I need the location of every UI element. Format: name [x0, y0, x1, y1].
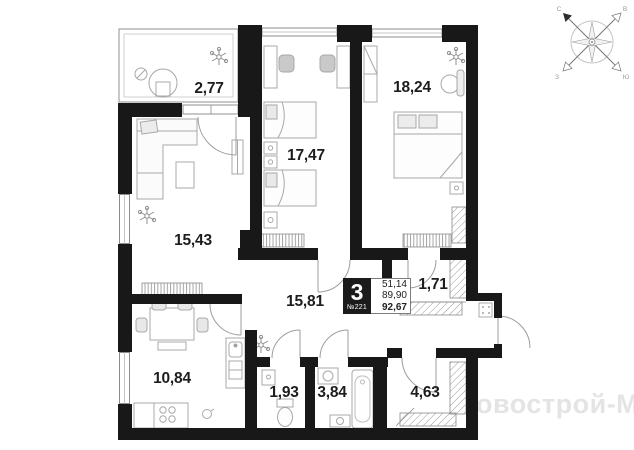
area-total: 92,67: [371, 302, 407, 314]
chair-icon: [279, 55, 294, 72]
armchair-icon: [457, 70, 464, 96]
room-area-label-bedroom-master: 18,24: [393, 79, 431, 96]
single-bed-icon: [264, 170, 316, 206]
room-area-label-bathroom: 3,84: [317, 384, 347, 401]
compass-letter-nw: С: [557, 6, 562, 13]
watermark: овострой-М: [476, 389, 634, 419]
room-area-label-living-room: 15,43: [174, 232, 212, 249]
wardrobe-icon: [400, 413, 456, 426]
apartment-info-card: 3 №221 51,14 89,90 92,67: [343, 278, 411, 314]
rooms-count: 3: [351, 281, 364, 303]
double-bed-icon: [394, 112, 462, 178]
rooms-count-badge: 3 №221: [343, 278, 371, 314]
window-kitchen: [120, 353, 130, 404]
room-area-label-hallway: 15,81: [286, 293, 324, 310]
room-area-label-closet: 1,71: [418, 276, 448, 293]
compass-letter-ne: В: [623, 6, 627, 13]
radiator-icon: [142, 283, 202, 295]
compass-icon: С В З Ю: [552, 2, 632, 82]
wardrobe-icon: [452, 207, 466, 243]
areas-box: 51,14 89,90 92,67: [371, 278, 411, 314]
chair-icon: [320, 55, 335, 72]
radiator-icon: [403, 234, 451, 247]
floor-plan-drawing: овострой-М: [0, 0, 634, 450]
unit-number: №221: [347, 304, 367, 311]
room-area-label-wardrobe: 4,63: [410, 384, 440, 401]
room-area-label-balcony: 2,77: [194, 80, 223, 97]
window-living-room: [120, 195, 130, 244]
area-main: 89,90: [371, 290, 407, 302]
compass-letter-se: Ю: [623, 74, 630, 81]
area-living: 51,14: [371, 279, 407, 291]
compass-letter-sw: З: [555, 74, 559, 81]
room-area-label-bedroom-children: 17,47: [287, 147, 325, 164]
room-area-label-wc: 1,93: [269, 384, 299, 401]
closet-shelving-icon: [450, 258, 467, 298]
window-bedroom-children: [262, 28, 337, 36]
floor-plan-page: овострой-М: [0, 0, 634, 450]
room-area-label-kitchen: 10,84: [153, 370, 191, 387]
wardrobe-icon: [450, 362, 466, 414]
single-bed-icon: [264, 102, 316, 138]
window-bedroom-master: [372, 29, 442, 37]
